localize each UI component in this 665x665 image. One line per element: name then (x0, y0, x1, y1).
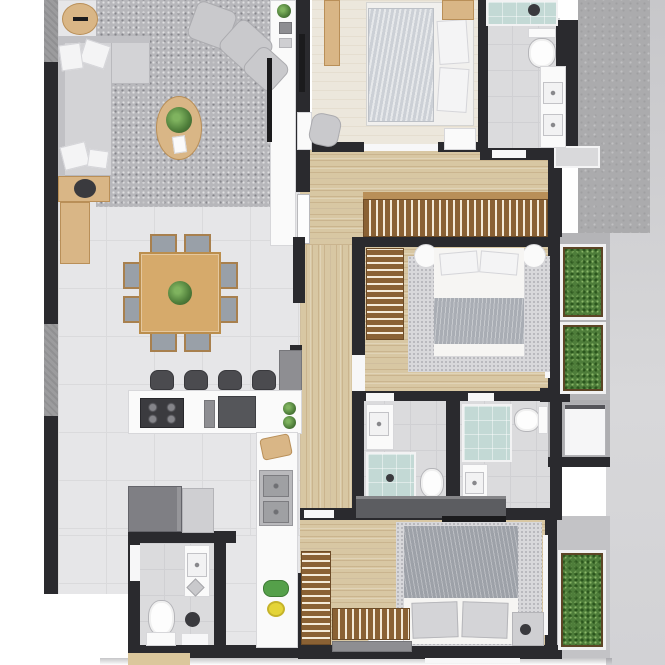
bathroom1-toilet-tank (528, 28, 556, 38)
dining-chair-top-2 (184, 234, 211, 254)
wc-door (130, 545, 140, 581)
living-console (60, 202, 90, 264)
bathroom1-door (492, 150, 526, 158)
bathroom1-sink-2 (543, 114, 563, 136)
bedroom3-closet-vertical (301, 551, 331, 645)
media-wall-cabinet (270, 0, 296, 246)
bedroom3-door (304, 510, 334, 518)
west-wall-upper (44, 62, 58, 324)
bathroomA-door (366, 393, 394, 401)
bed2-blanket (434, 298, 524, 344)
bedroom1-runner (324, 0, 340, 66)
cooktop (140, 398, 184, 428)
west-wall-lower (44, 416, 58, 594)
counter-herb-1 (283, 402, 296, 415)
bathroomB-sink (465, 472, 484, 494)
bathroom1-shower-head (528, 4, 540, 16)
sofa-pillow-4 (87, 149, 109, 170)
bedroom3-closet-horizontal (332, 608, 410, 640)
living-bedroom1-wall (296, 0, 310, 192)
tv-bedroom1 (299, 34, 305, 92)
kitchen-cabinet (182, 488, 214, 533)
balcony3-planter (558, 550, 606, 650)
bar-stool-1 (150, 370, 174, 390)
sofa-back-top (58, 36, 150, 43)
kitchen-sink-1 (263, 475, 289, 497)
bathroomA-drain (386, 474, 394, 482)
counter-herb-2 (283, 416, 296, 429)
bathroom1-toilet-bowl (528, 38, 556, 68)
kitchen-utensil (204, 400, 215, 428)
ac-unit (554, 146, 600, 168)
washing-machine (564, 404, 606, 456)
sponge (267, 601, 285, 617)
bar-stool-3 (218, 370, 242, 390)
bed2-pillow-1 (439, 250, 479, 275)
bar-stool-4 (252, 370, 276, 390)
hall-closet-rail (363, 199, 548, 237)
floor-plan (0, 0, 665, 665)
dining-table-plant (168, 281, 192, 305)
bed2-pillow-2 (479, 250, 519, 275)
wc-wall-right (214, 531, 226, 657)
kitchen-floor-left (58, 535, 128, 594)
bathroomB-shower (462, 404, 512, 462)
dining-chair-bottom-1 (150, 332, 177, 352)
wc-toilet-bowl (148, 600, 175, 636)
living-side-table-slit (73, 17, 88, 21)
scrubber (263, 580, 289, 597)
bed1-pillow-2 (437, 67, 470, 113)
dining-corridor-wall (293, 237, 305, 303)
exterior-concrete-block (578, 0, 650, 233)
bathroomB-right-wall (550, 391, 562, 520)
bathroomB-toilet-tank (538, 406, 548, 434)
wc-plant (185, 612, 200, 627)
coffee-table-plant (166, 107, 192, 133)
dining-chair-right-1 (218, 262, 238, 289)
bedroom3-bench (332, 641, 412, 652)
cabinet-deco-2 (279, 38, 292, 48)
bedroom3-console (356, 496, 506, 518)
balcony2-planter-2 (560, 322, 606, 394)
balcony2-planter-1 (560, 244, 606, 320)
hall-closet-top-edge (363, 192, 548, 199)
bathroom1-sink-1 (543, 82, 563, 104)
kitchen-grill (218, 396, 256, 428)
bathroomB-toilet-bowl (514, 408, 540, 432)
west-wall-concrete-top (44, 0, 58, 62)
sofa-pillow-2 (58, 43, 83, 72)
bed2-foot (434, 344, 524, 356)
wc-mat (182, 634, 208, 645)
bed1-nightstand-top (442, 0, 474, 20)
bed2-stool-right (522, 244, 546, 268)
tv-living (267, 58, 272, 142)
bedroom2-door (352, 355, 365, 395)
cabinet-plant (277, 4, 291, 18)
west-wall-concrete-mid (44, 324, 58, 416)
entry-threshold (128, 653, 190, 665)
bed3-blanket (404, 526, 518, 600)
dining-chair-right-2 (218, 296, 238, 323)
bedroom3-window-sill (425, 658, 520, 663)
dining-chair-top-1 (150, 234, 177, 254)
bed3-pillow-2 (461, 601, 508, 639)
bed3-pillow-1 (411, 601, 458, 639)
bathroomA-sink (369, 412, 389, 436)
bed1-blanket (368, 8, 434, 122)
corridor-floor (300, 245, 356, 530)
coffee-table-deco (172, 135, 187, 154)
sofa-side-table-tray (74, 179, 96, 198)
bathroom1-shower (486, 0, 558, 26)
kitchen-sink-2 (263, 501, 289, 523)
bedroom2-closet (366, 248, 404, 340)
wc-toilet-tank (146, 632, 176, 646)
bed1-nightstand-bottom (444, 128, 476, 150)
bed3-lamp (520, 624, 531, 635)
bar-stool-2 (184, 370, 208, 390)
cabinet-deco-1 (279, 22, 292, 34)
bedroom1-door (364, 144, 438, 151)
service-wall-south (548, 457, 610, 467)
wc-sink (187, 553, 207, 577)
fridge (128, 486, 182, 532)
bathroomA-toilet-bowl (420, 468, 444, 498)
dining-chair-bottom-2 (184, 332, 211, 352)
bed1-pillow-1 (437, 19, 470, 65)
bedroom2-west-wall (352, 247, 365, 355)
bathroomB-door (468, 393, 494, 401)
